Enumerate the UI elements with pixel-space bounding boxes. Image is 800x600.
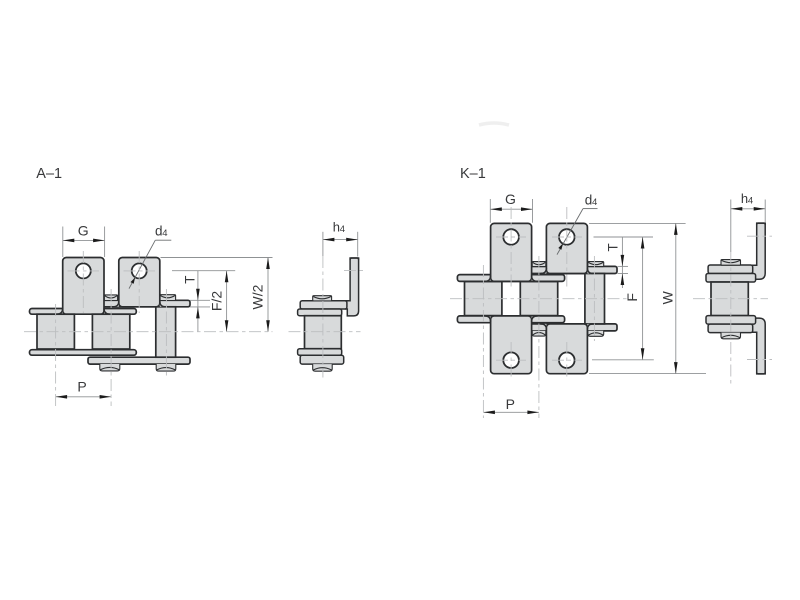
svg-text:T: T: [606, 243, 621, 251]
svg-text:A–1: A–1: [36, 166, 62, 182]
svg-text:G: G: [78, 222, 89, 238]
svg-text:4: 4: [340, 224, 345, 235]
svg-text:G: G: [505, 191, 516, 207]
svg-text:4: 4: [592, 197, 597, 208]
svg-text:4: 4: [162, 228, 167, 239]
svg-text:F: F: [624, 293, 640, 302]
svg-text:P: P: [77, 378, 86, 394]
svg-text:F/2: F/2: [209, 291, 225, 311]
svg-text:4: 4: [748, 196, 753, 207]
svg-text:P: P: [506, 396, 515, 412]
svg-text:W: W: [660, 290, 676, 304]
svg-text:W/2: W/2: [249, 284, 265, 309]
svg-text:T: T: [182, 275, 197, 283]
svg-text:K–1: K–1: [460, 166, 486, 182]
